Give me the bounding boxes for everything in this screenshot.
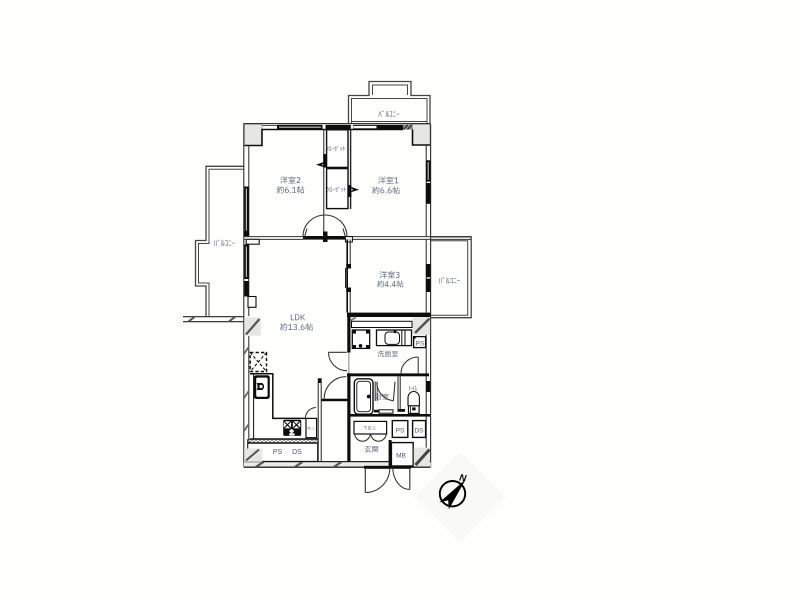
svg-text:PS: PS <box>273 449 283 456</box>
svg-text:DS: DS <box>414 428 424 435</box>
svg-text:DS: DS <box>292 449 302 456</box>
svg-text:MB: MB <box>396 453 406 460</box>
svg-text:PS: PS <box>396 428 405 435</box>
svg-text:PS: PS <box>416 341 425 348</box>
